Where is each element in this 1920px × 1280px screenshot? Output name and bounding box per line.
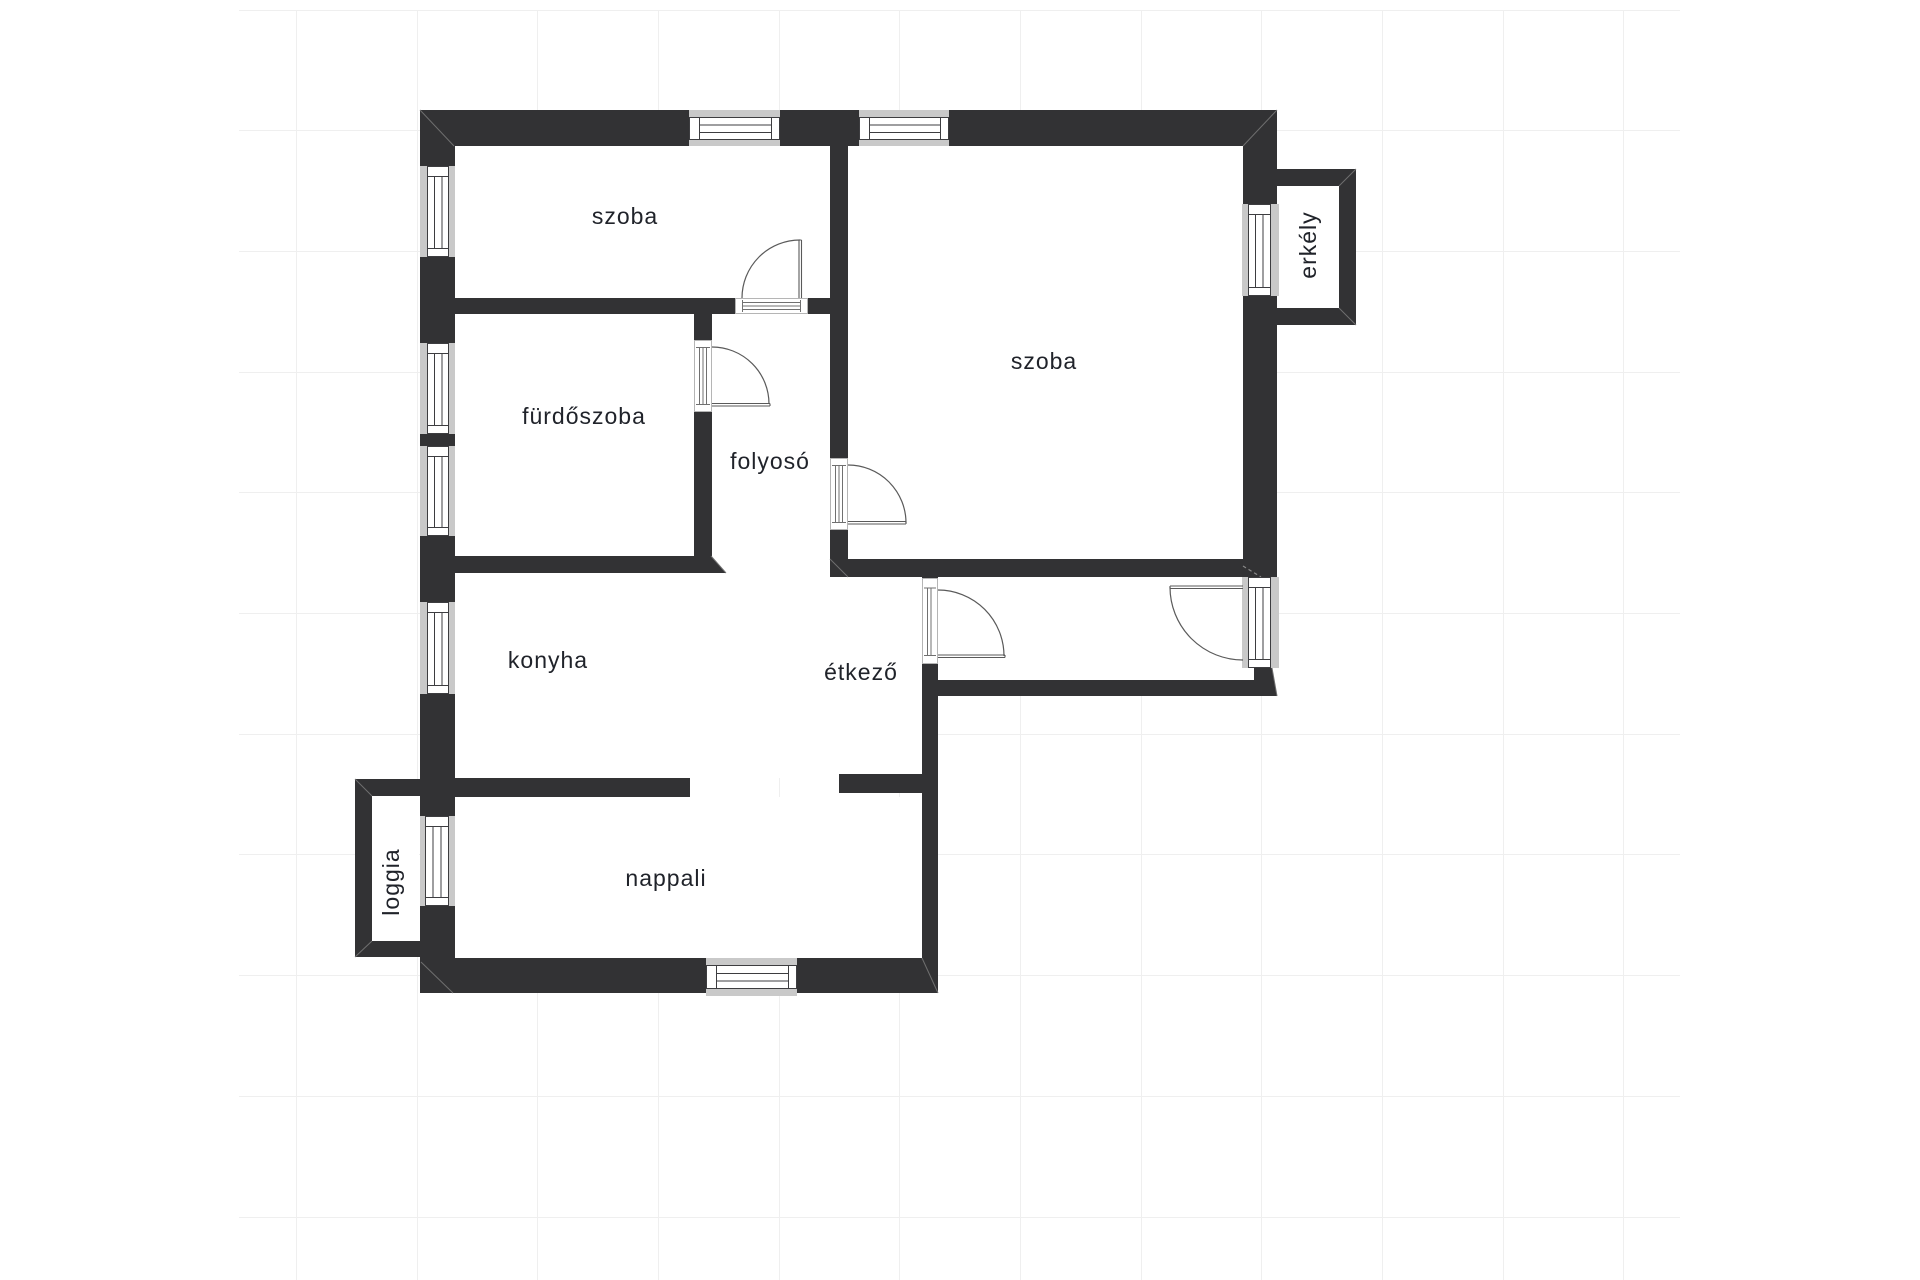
svg-text:nappali: nappali bbox=[625, 865, 706, 891]
svg-text:fürdőszoba: fürdőszoba bbox=[522, 403, 646, 429]
svg-text:étkező: étkező bbox=[824, 659, 898, 685]
svg-text:erkély: erkély bbox=[1295, 211, 1321, 278]
svg-text:szoba: szoba bbox=[1011, 348, 1077, 374]
svg-text:folyosó: folyosó bbox=[730, 448, 810, 474]
svg-text:szoba: szoba bbox=[592, 203, 658, 229]
svg-text:konyha: konyha bbox=[508, 647, 588, 673]
svg-text:loggia: loggia bbox=[378, 848, 404, 915]
